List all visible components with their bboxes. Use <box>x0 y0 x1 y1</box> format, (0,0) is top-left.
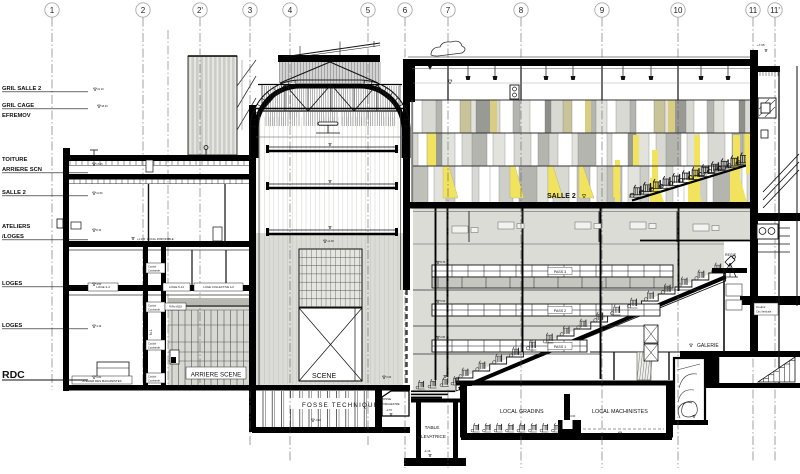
svg-text:18.20: 18.20 <box>101 104 108 108</box>
svg-text:FOSSE TECHNIQUE: FOSSE TECHNIQUE <box>302 402 379 409</box>
svg-text:LOGE COLLECTIVE 1/2: LOGE COLLECTIVE 1/2 <box>203 285 234 289</box>
svg-text:PASS 3: PASS 3 <box>554 270 566 274</box>
svg-text:LOGES: LOGES <box>2 323 22 329</box>
svg-text:6: 6 <box>403 6 408 15</box>
svg-text:GALERIE: GALERIE <box>697 343 719 349</box>
svg-text:R/Pa M118: R/Pa M118 <box>169 304 182 308</box>
svg-text:Courlande: Courlande <box>148 308 161 312</box>
svg-text:11': 11' <box>770 6 780 15</box>
svg-text:FOSSE: FOSSE <box>381 397 391 401</box>
svg-text:21.10: 21.10 <box>97 87 104 91</box>
svg-text:/LOGES: /LOGES <box>2 234 24 240</box>
svg-text:4.60: 4.60 <box>96 282 102 286</box>
svg-text:TABLE: TABLE <box>425 425 440 431</box>
svg-text:11: 11 <box>749 6 758 15</box>
svg-text:Couloir: Couloir <box>148 304 156 308</box>
svg-text:LOGE 5-11: LOGE 5-11 <box>169 285 184 289</box>
svg-text:LOGES: LOGES <box>2 281 22 287</box>
svg-text:ARRIERE SCENE: ARRIERE SCENE <box>191 372 242 379</box>
svg-text:7: 7 <box>446 6 451 15</box>
svg-text:10: 10 <box>674 6 683 15</box>
svg-text:+0.00: +0.00 <box>327 239 334 243</box>
svg-text:4: 4 <box>288 6 293 15</box>
svg-text:8: 8 <box>519 6 524 15</box>
svg-text:-4.16: -4.16 <box>424 449 431 453</box>
svg-text:LOCAL MACHINISTES: LOCAL MACHINISTES <box>592 409 648 415</box>
svg-text:4.19: 4.19 <box>96 324 102 328</box>
svg-text:Couloir: Couloir <box>148 342 156 346</box>
svg-text:Circ.Verticale: Circ.Verticale <box>756 310 772 314</box>
svg-text:D'ORCHESTRE: D'ORCHESTRE <box>381 402 400 406</box>
svg-text:SCENE: SCENE <box>312 373 336 380</box>
svg-text:2: 2 <box>141 6 146 15</box>
svg-text:EFREMOV: EFREMOV <box>2 113 31 119</box>
svg-text:5.50: 5.50 <box>440 299 446 303</box>
svg-text:SALLE 2: SALLE 2 <box>2 190 26 196</box>
svg-text:-3.10: -3.10 <box>315 418 321 422</box>
svg-text:PASS 1: PASS 1 <box>554 345 566 349</box>
svg-text:0.00: 0.00 <box>386 375 392 379</box>
svg-text:PASS 2: PASS 2 <box>554 309 566 313</box>
svg-text:Courlande: Courlande <box>148 379 161 383</box>
svg-text:ELEVATRICE: ELEVATRICE <box>418 434 446 439</box>
svg-text:9: 9 <box>600 6 605 15</box>
svg-text:5: 5 <box>366 6 371 15</box>
svg-text:ATELIER DES MACHINISTES: ATELIER DES MACHINISTES <box>82 379 121 383</box>
svg-text:SALLE 2: SALLE 2 <box>547 193 576 200</box>
svg-text:N-1: N-1 <box>149 329 153 335</box>
svg-text:Courlande: Courlande <box>148 269 161 273</box>
svg-text:-2.70: -2.70 <box>386 408 392 412</box>
svg-text:0.00: 0.00 <box>96 375 102 379</box>
svg-text:RDC: RDC <box>2 369 25 381</box>
svg-text:Couloir: Couloir <box>148 375 156 379</box>
svg-text:LOCAL DISPONIBLE: LOCAL DISPONIBLE <box>147 237 174 241</box>
svg-text:0.60: 0.60 <box>570 414 576 418</box>
svg-text:LOCAL GRADINS: LOCAL GRADINS <box>500 409 544 415</box>
svg-text:8.70: 8.70 <box>440 260 446 264</box>
svg-text:ARRIERE SCN: ARRIERE SCN <box>2 167 42 173</box>
svg-text:Couloir: Couloir <box>756 305 766 309</box>
svg-text:ATELIERS: ATELIERS <box>2 224 30 230</box>
svg-text:17.05: 17.05 <box>96 162 103 166</box>
svg-text:1: 1 <box>50 6 55 15</box>
svg-text:GRIL CAGE: GRIL CAGE <box>2 103 34 109</box>
svg-text:11.50: 11.50 <box>96 191 103 195</box>
svg-text:+1.135: +1.135 <box>137 237 146 241</box>
svg-text:Couloir: Couloir <box>148 265 156 269</box>
svg-text:GRIL SALLE 2: GRIL SALLE 2 <box>2 86 41 92</box>
svg-text:Courlande: Courlande <box>148 346 161 350</box>
svg-text:TOITURE: TOITURE <box>2 157 27 163</box>
svg-text:+7.05: +7.05 <box>757 43 765 47</box>
svg-text:2.80: 2.80 <box>440 335 446 339</box>
svg-text:3: 3 <box>248 6 253 15</box>
svg-text:2': 2' <box>197 6 203 15</box>
svg-text:8.10: 8.10 <box>96 228 102 232</box>
